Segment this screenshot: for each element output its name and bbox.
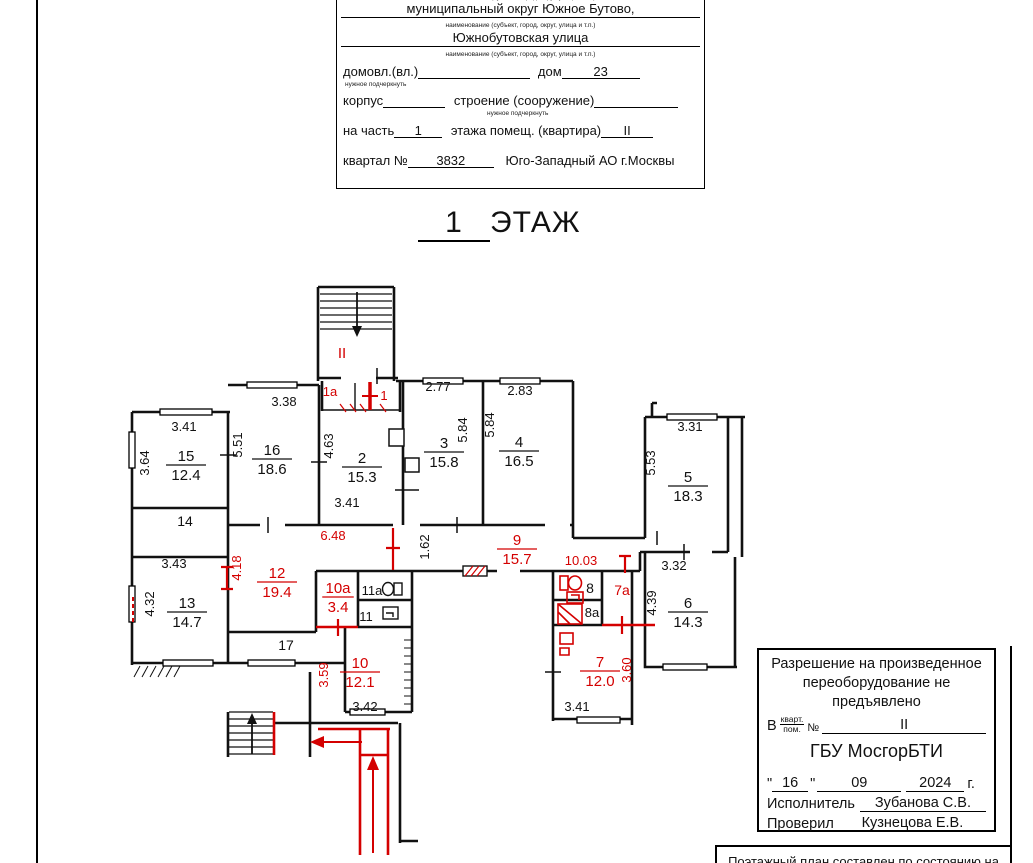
room-number: 9 bbox=[513, 532, 521, 549]
ground-hatch bbox=[134, 666, 180, 677]
dimension-label: 3.32 bbox=[661, 558, 686, 573]
walls bbox=[132, 287, 745, 843]
stamp-box: Разрешение на произведенное переоборудов… bbox=[757, 648, 996, 832]
window bbox=[160, 409, 212, 415]
room-area: 14.7 bbox=[172, 614, 201, 631]
room-number: 2 bbox=[358, 450, 366, 467]
room-number: 12 bbox=[269, 565, 286, 582]
room-number: 10 bbox=[352, 655, 369, 672]
dimension-label: 4.32 bbox=[142, 591, 157, 616]
kvart-pom-fraction: кварт. пом. bbox=[780, 715, 805, 735]
room-area: 15.3 bbox=[347, 469, 376, 486]
dimension-label: 4.39 bbox=[644, 590, 659, 615]
dimension-label: 3.42 bbox=[352, 699, 377, 714]
dimension-label: 3.41 bbox=[564, 699, 589, 714]
dimension-label: 3.64 bbox=[137, 450, 152, 475]
dimension-label: 5.51 bbox=[230, 432, 245, 457]
stamp-line1: Разрешение на произведенное bbox=[767, 655, 986, 674]
dimension-label: 5.84 bbox=[455, 417, 470, 442]
dimension-label: 5.53 bbox=[643, 450, 658, 475]
room-number: 4 bbox=[515, 434, 523, 451]
dimension-label: 2.77 bbox=[425, 379, 450, 394]
room-number: 15 bbox=[178, 448, 195, 465]
dimension-label: 1.62 bbox=[417, 534, 432, 559]
dimension-label: 3.59 bbox=[316, 662, 331, 687]
dimension-label: 17 bbox=[278, 637, 294, 653]
executor-name: Зубанова С.В. bbox=[860, 795, 986, 812]
dimension-label: 8 bbox=[586, 580, 594, 596]
toilet-icon bbox=[383, 583, 403, 596]
room-number: 16 bbox=[264, 442, 281, 459]
stamp-day: 16 bbox=[772, 775, 808, 792]
room-area: 15.7 bbox=[502, 551, 531, 568]
entry-arrow-up-icon bbox=[367, 756, 379, 853]
dimension-label: 1 bbox=[380, 388, 387, 403]
stamp-apartment-value: II bbox=[822, 717, 986, 734]
room-area: 12.1 bbox=[345, 674, 374, 691]
room-number: 10a bbox=[325, 580, 351, 597]
dimension-label: 4.63 bbox=[321, 433, 336, 458]
stairs-upper bbox=[320, 294, 392, 329]
dimension-ticks bbox=[220, 368, 684, 672]
red-shower-icon bbox=[558, 604, 582, 624]
window bbox=[247, 382, 297, 388]
window bbox=[163, 660, 213, 666]
room-area: 16.5 bbox=[504, 453, 533, 470]
red-riser-icon bbox=[340, 382, 386, 412]
room-area: 12.0 bbox=[585, 673, 614, 690]
stamp-v-label: В bbox=[767, 718, 777, 734]
room-area: 19.4 bbox=[262, 584, 291, 601]
stamp-year: 2024 bbox=[906, 775, 964, 792]
stamp-month: 09 bbox=[817, 775, 901, 792]
stamp-year-suffix: г. bbox=[967, 776, 975, 792]
stamp-line2: переоборудование не предъявлено bbox=[767, 674, 986, 712]
window bbox=[577, 717, 620, 723]
red-fixture-icon bbox=[560, 633, 573, 655]
room-number: 7 bbox=[596, 654, 604, 671]
dimension-label: II bbox=[338, 345, 346, 362]
room-area: 18.3 bbox=[673, 488, 702, 505]
dimension-label: 3.43 bbox=[161, 556, 186, 571]
dimension-label: 14 bbox=[177, 513, 193, 529]
dimension-label: 6.48 bbox=[320, 528, 345, 543]
window bbox=[248, 660, 295, 666]
room-area: 3.4 bbox=[328, 599, 349, 616]
checker-label: Проверил bbox=[767, 816, 834, 832]
dimension-label: 11a bbox=[362, 583, 383, 598]
hatched-wall-segment bbox=[463, 566, 487, 576]
dimension-label: 1a bbox=[323, 384, 338, 399]
room-number: 5 bbox=[684, 469, 692, 486]
dimension-label: 3.60 bbox=[619, 657, 634, 682]
scanned-floorplan-page: { "form": { "caption_name": "наименовани… bbox=[0, 0, 1033, 863]
dimension-label: 3.38 bbox=[271, 394, 296, 409]
pom-label: пом. bbox=[783, 724, 801, 734]
room-area: 18.6 bbox=[257, 461, 286, 478]
stamp-no-sign: № bbox=[807, 722, 819, 734]
window bbox=[129, 432, 135, 468]
dimension-label: 2.83 bbox=[507, 383, 532, 398]
dimension-label: 3.41 bbox=[334, 495, 359, 510]
executor-label: Исполнитель bbox=[767, 796, 855, 812]
dimension-label: 4.18 bbox=[229, 555, 244, 580]
dimension-label: 7a bbox=[614, 582, 630, 598]
dimension-label: 5.84 bbox=[482, 412, 497, 437]
plan-labels: 1512.41618.61314.7215.3315.8416.5518.361… bbox=[137, 345, 708, 714]
entry-arrow-left-icon bbox=[310, 736, 362, 748]
room-area: 14.3 bbox=[673, 614, 702, 631]
stamp-org: ГБУ МосгорБТИ bbox=[767, 740, 986, 763]
room-area: 12.4 bbox=[171, 467, 200, 484]
dimension-label: 3.31 bbox=[677, 419, 702, 434]
sink-icon bbox=[383, 607, 398, 619]
room-area: 15.8 bbox=[429, 454, 458, 471]
checker-name: Кузнецова Е.В. bbox=[839, 815, 986, 832]
quote-mark: " bbox=[810, 776, 815, 792]
dimension-label: 8a bbox=[585, 605, 600, 620]
window bbox=[663, 664, 707, 670]
dimension-label: 3.41 bbox=[171, 419, 196, 434]
bottom-note-text: Поэтажный план составлен по состоянию на bbox=[728, 854, 999, 863]
red-sink-icon bbox=[567, 592, 583, 603]
room-number: 13 bbox=[179, 595, 196, 612]
bottom-note-box: Поэтажный план составлен по состоянию на bbox=[715, 845, 1012, 863]
dimension-label: 10.03 bbox=[565, 553, 598, 568]
room-number: 6 bbox=[684, 595, 692, 612]
red-toilet-icon bbox=[560, 576, 582, 590]
room-number: 3 bbox=[440, 435, 448, 452]
dimension-label: 11 bbox=[359, 609, 373, 624]
